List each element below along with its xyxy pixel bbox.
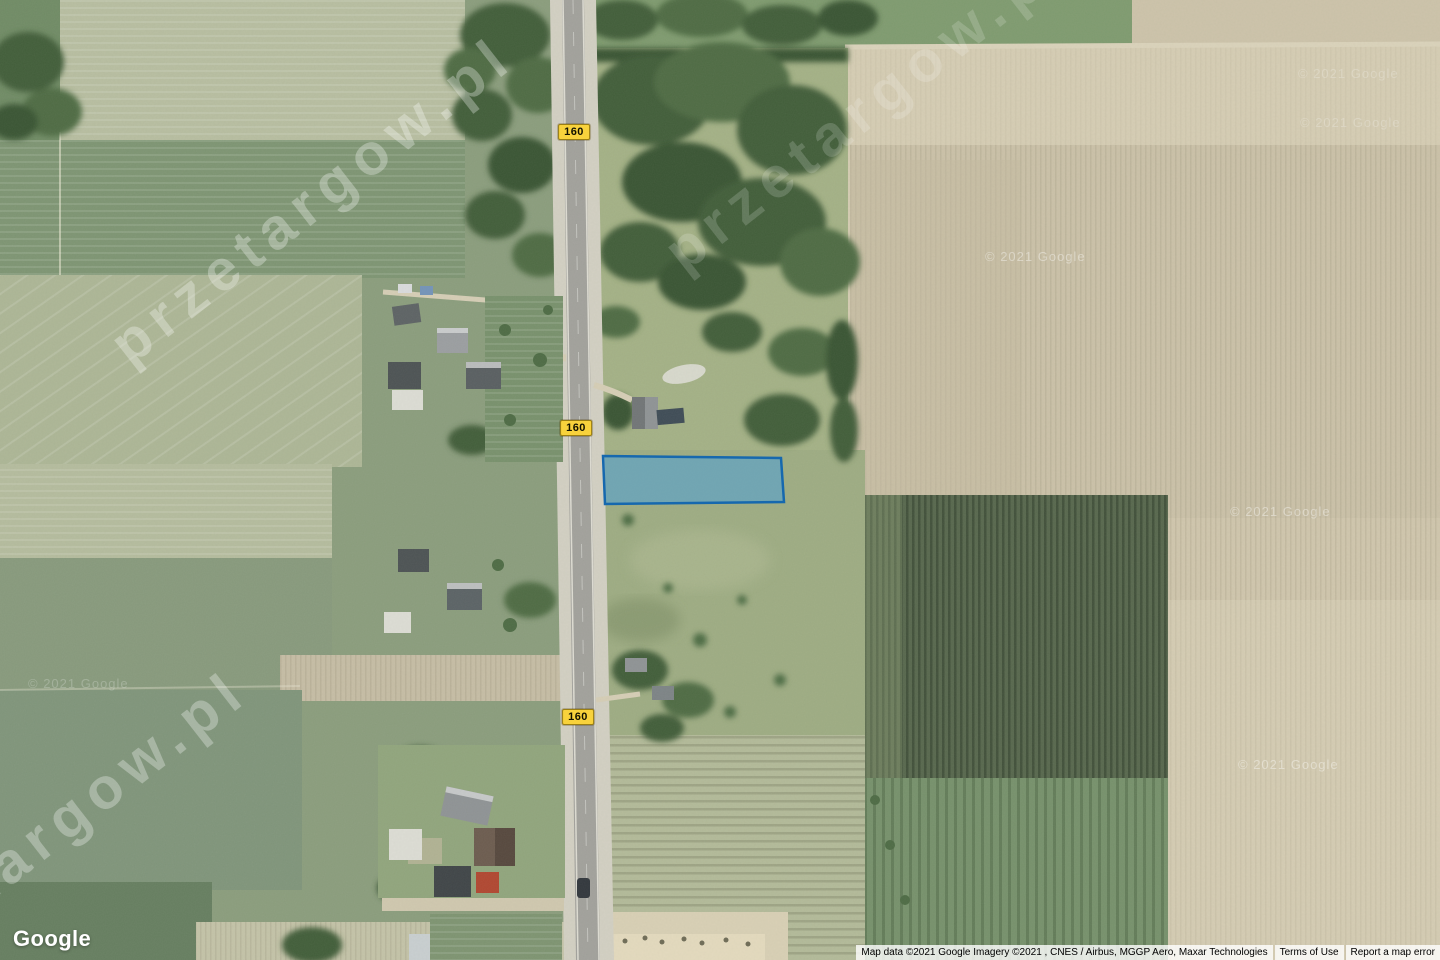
route-badge-160: 160 — [560, 420, 592, 436]
map-data-attribution: Map data ©2021 Google Imagery ©2021 , CN… — [856, 945, 1272, 960]
satellite-imagery — [0, 0, 1440, 960]
attribution-bar: Map data ©2021 Google Imagery ©2021 , CN… — [856, 945, 1440, 960]
google-logo[interactable]: Google — [13, 926, 91, 952]
route-badge-160: 160 — [558, 124, 590, 140]
satellite-map-viewport[interactable]: przetargow.pl przetargow.pl przetargow.p… — [0, 0, 1440, 960]
route-badge-160: 160 — [562, 709, 594, 725]
report-map-error-link[interactable]: Report a map error — [1346, 945, 1440, 960]
highlighted-parcel[interactable] — [603, 456, 784, 504]
terms-of-use-link[interactable]: Terms of Use — [1275, 945, 1344, 960]
